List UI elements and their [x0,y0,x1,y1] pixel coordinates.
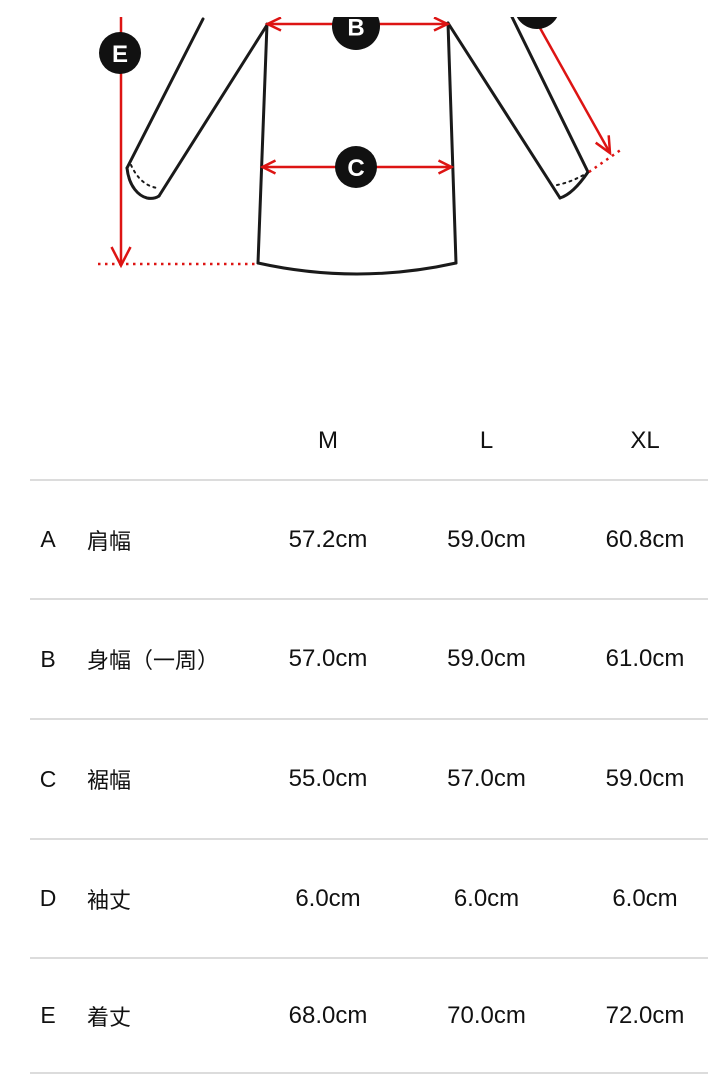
row-value-m: 6.0cm [249,885,408,913]
table-row: B 身幅（一周） 57.0cm 59.0cm 61.0cm [0,600,713,718]
row-value-xl: 61.0cm [566,645,713,673]
badge-d-circle-partial [514,17,560,29]
row-key: D [30,885,66,912]
row-label: 袖丈 [66,883,249,915]
sleeve-right-inner-line [448,23,560,198]
sleeve-left-cuff-seam-dotted [131,165,157,188]
row-label: 肩幅 [66,524,249,556]
row-key: C [30,766,66,793]
measure-badges: B E C [99,17,560,188]
table-row: D 袖丈 6.0cm 6.0cm 6.0cm [0,840,713,957]
row-value-l: 59.0cm [407,645,566,673]
body-left-line [258,24,267,263]
row-divider [30,598,708,600]
row-divider [30,718,708,720]
badge-b-label: B [347,17,364,42]
sleeve-left-cuff [127,168,159,198]
column-header-xl: XL [566,427,713,455]
garment-diagram: B E C [0,17,713,285]
body-hem-curve [258,263,456,274]
body-right-line [448,23,456,263]
cuff-extension-dotted [589,149,622,172]
badge-c-label: C [347,155,364,182]
table-header-row: M L XL [0,408,713,474]
table-row: C 裾幅 55.0cm 57.0cm 59.0cm [0,720,713,838]
size-chart-page: B E C M L XL A 肩幅 57.2cm 59.0cm 60.8cm [0,0,713,1080]
table-row: E 着丈 68.0cm 70.0cm 72.0cm [0,959,713,1072]
row-label: 裾幅 [66,763,249,795]
row-value-m: 55.0cm [249,765,408,793]
row-value-xl: 60.8cm [566,526,713,554]
row-key: A [30,526,66,553]
column-header-l: L [407,427,566,455]
row-divider [30,1072,708,1074]
row-value-m: 57.0cm [249,645,408,673]
column-header-m: M [249,427,408,455]
row-divider [30,838,708,840]
garment-outline [127,17,588,274]
row-value-xl: 72.0cm [566,1002,713,1030]
row-value-m: 57.2cm [249,526,408,554]
row-value-l: 57.0cm [407,765,566,793]
row-divider [30,479,708,481]
row-value-l: 6.0cm [407,885,566,913]
row-label: 着丈 [66,1000,249,1032]
row-value-xl: 59.0cm [566,765,713,793]
row-value-xl: 6.0cm [566,885,713,913]
measure-arrow-d [540,28,610,153]
row-value-m: 68.0cm [249,1002,408,1030]
row-value-l: 70.0cm [407,1002,566,1030]
sleeve-left-inner-line [159,25,267,196]
row-label: 身幅（一周） [66,643,249,675]
badge-e-label: E [112,41,128,68]
row-divider [30,957,708,959]
measurement-arrows [98,17,622,266]
row-key: B [30,646,66,673]
row-value-l: 59.0cm [407,526,566,554]
row-key: E [30,1002,66,1029]
table-row: A 肩幅 57.2cm 59.0cm 60.8cm [0,481,713,598]
